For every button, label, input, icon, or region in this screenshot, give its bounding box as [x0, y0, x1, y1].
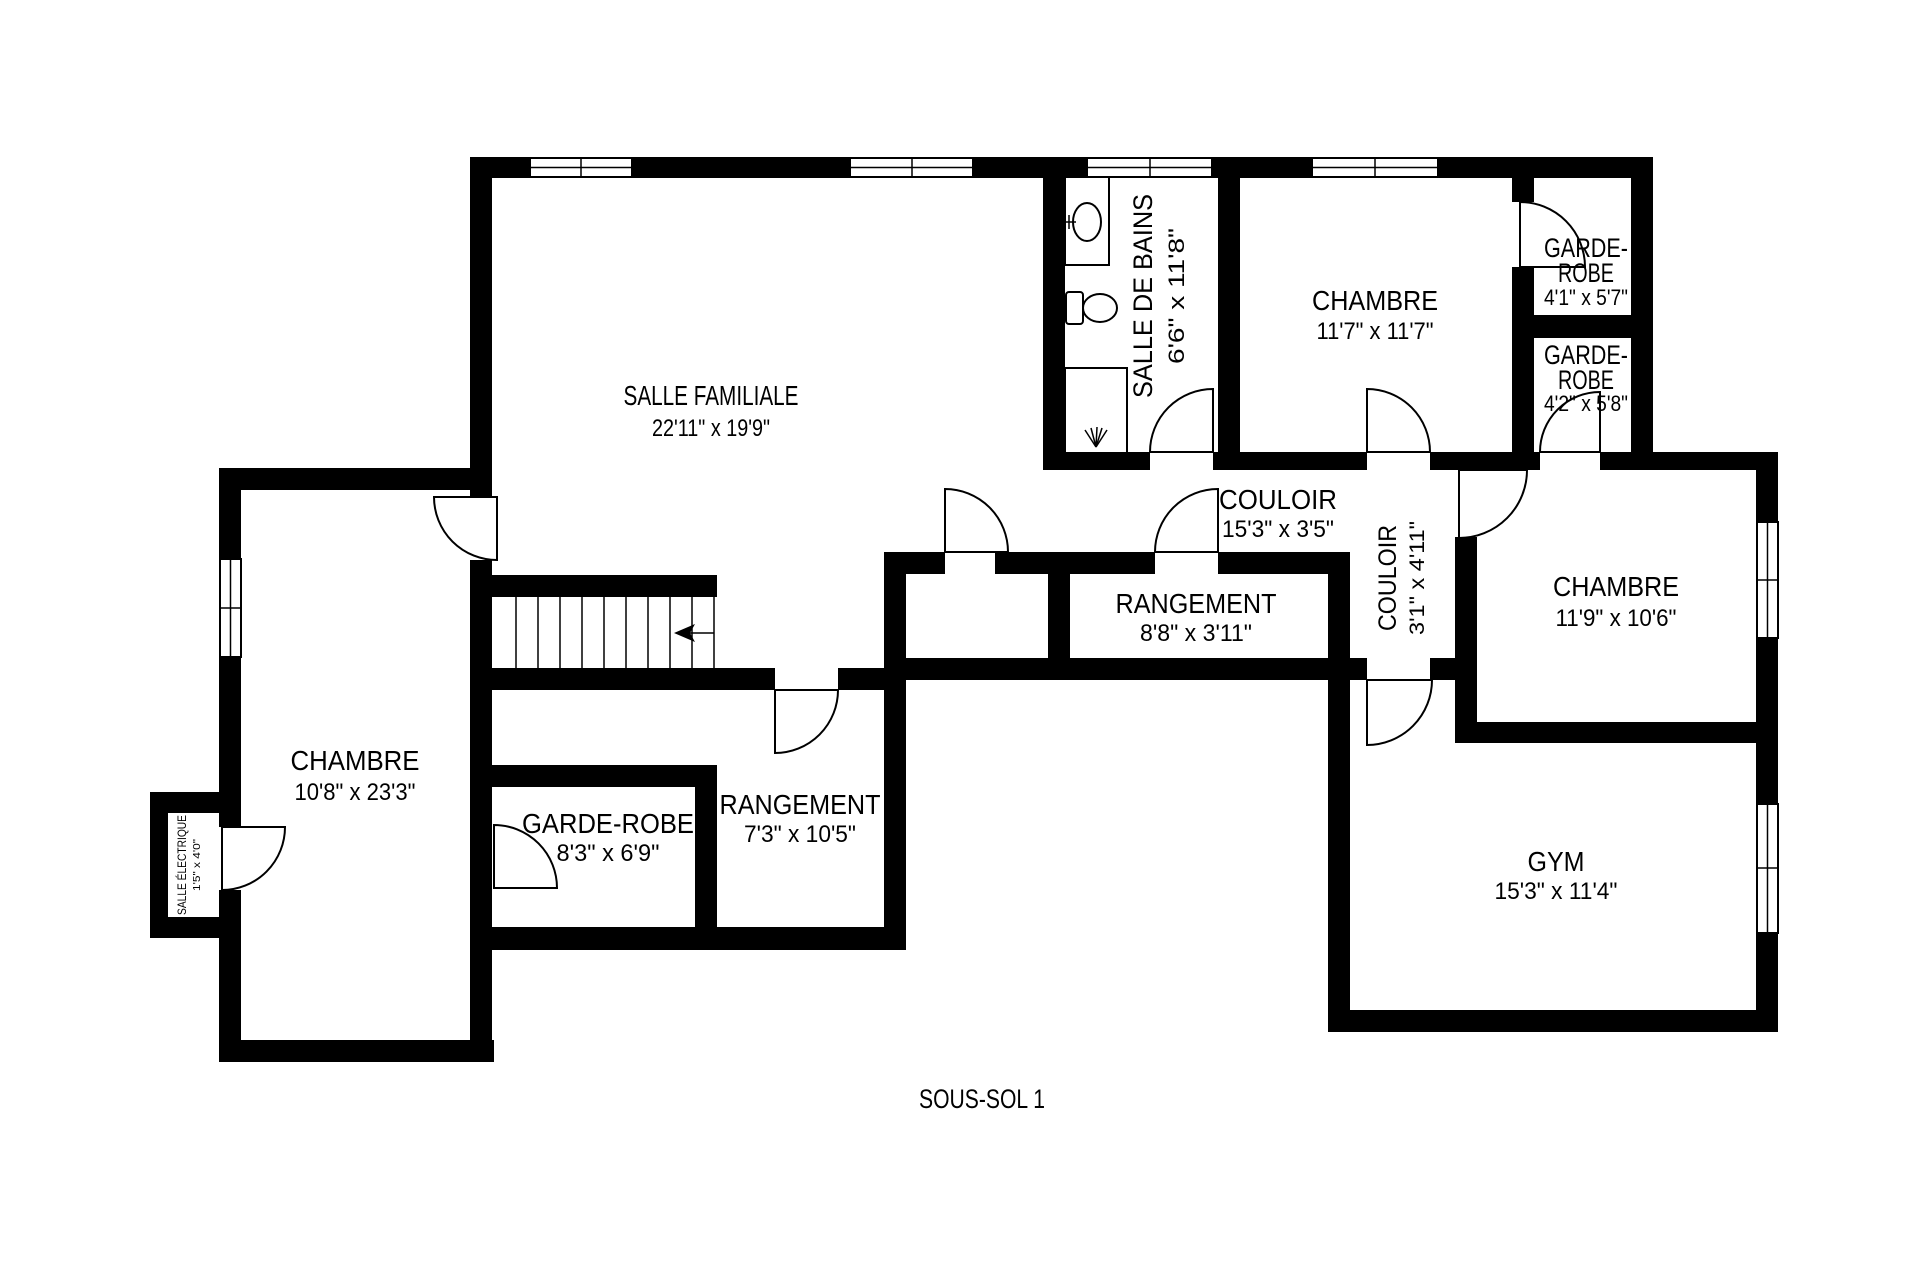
wall-segment	[1218, 157, 1240, 470]
window	[1757, 522, 1778, 638]
room-label-chambre-gauche: CHAMBRE	[291, 745, 420, 776]
wall-segment	[472, 575, 717, 597]
bathroom-fixtures	[1062, 177, 1127, 453]
room-dims-gym: 15'3" x 11'4"	[1495, 878, 1618, 905]
wall-segment	[1328, 552, 1350, 1032]
floor-plan: SALLE FAMILIALE 22'11" x 19'9" SALLE DE …	[0, 0, 1920, 1280]
room-dims-rangement: 8'8" x 3'11"	[1140, 620, 1252, 647]
walls	[150, 157, 1778, 1062]
wall-segment	[1213, 452, 1367, 470]
door-arc	[222, 827, 285, 890]
room-label-rangement: RANGEMENT	[1116, 588, 1277, 619]
wall-segment	[884, 552, 906, 950]
wall-segment	[995, 552, 1155, 574]
window	[1757, 804, 1778, 933]
window	[220, 559, 241, 657]
room-dims-salle-familiale: 22'11" x 19'9"	[652, 415, 770, 442]
window	[1312, 158, 1438, 177]
room-label-chambre-haut: CHAMBRE	[1312, 285, 1438, 316]
room-label-garde-robe-gauche: GARDE-ROBE	[522, 808, 694, 839]
wall-segment	[1043, 157, 1065, 470]
wall-segment	[1512, 338, 1534, 470]
wall-segment	[884, 658, 1367, 680]
wall-segment	[219, 1040, 494, 1062]
room-dims-garde-robe-gauche: 8'3" x 6'9"	[557, 840, 660, 867]
window	[530, 158, 632, 177]
room-label-couloir-2: COULOIR	[1374, 525, 1402, 631]
door-arc	[1367, 389, 1430, 452]
wall-segment	[884, 552, 945, 574]
wall-segment	[1756, 452, 1778, 522]
wall-segment	[1631, 157, 1653, 470]
room-label-salle-de-bains: SALLE DE BAINS	[1128, 194, 1158, 398]
door-arc	[434, 497, 497, 560]
wall-segment	[695, 765, 717, 950]
wall-segment	[1328, 1010, 1778, 1032]
room-label-chambre-droite: CHAMBRE	[1553, 571, 1679, 602]
door-arc	[1459, 470, 1527, 538]
room-dims-couloir-2: 3'1" x 4'11"	[1406, 521, 1429, 635]
door-arc	[1367, 680, 1432, 745]
wall-segment	[1455, 722, 1778, 743]
wall-segment	[1600, 452, 1778, 470]
wall-segment	[1512, 157, 1534, 202]
window	[1087, 158, 1212, 177]
wall-segment	[1043, 452, 1150, 470]
door-arc	[945, 489, 1008, 552]
door-arc	[1150, 389, 1213, 452]
sink-icon	[1062, 177, 1109, 265]
room-label-garde-robe-1b: ROBE	[1558, 258, 1614, 288]
room-label-rangement-bas: RANGEMENT	[720, 789, 881, 820]
room-label-salle-familiale: SALLE FAMILIALE	[624, 380, 799, 411]
staircase	[516, 597, 714, 668]
plan-title: SOUS-SOL 1	[919, 1084, 1045, 1114]
wall-segment	[1430, 452, 1540, 470]
room-dims-salle-de-bains: 6'6" x 11'8"	[1164, 228, 1189, 364]
stairs-direction-arrow	[674, 624, 714, 642]
toilet-icon	[1066, 292, 1117, 324]
room-label-couloir: COULOIR	[1219, 484, 1337, 515]
window	[850, 158, 973, 177]
wall-segment	[219, 468, 490, 490]
wall-segment	[1756, 638, 1778, 804]
room-dims-garde-robe-2: 4'2" x 5'8"	[1544, 391, 1628, 416]
wall-segment	[472, 668, 775, 690]
room-dims-garde-robe-1: 4'1" x 5'7"	[1544, 285, 1628, 310]
room-label-gym: GYM	[1528, 846, 1585, 877]
wall-segment	[470, 157, 492, 497]
room-labels: SALLE FAMILIALE 22'11" x 19'9" SALLE DE …	[174, 194, 1679, 1114]
door-arc	[1155, 489, 1218, 552]
shower-icon	[1065, 368, 1127, 453]
wall-segment	[470, 560, 492, 1062]
room-dims-couloir: 15'3" x 3'5"	[1222, 516, 1334, 543]
room-dims-rangement-bas: 7'3" x 10'5"	[744, 821, 856, 848]
floor-plan-canvas: SALLE FAMILIALE 22'11" x 19'9" SALLE DE …	[0, 0, 1920, 1280]
wall-segment	[1218, 552, 1328, 574]
room-dims-salle-electrique: 1'5" x 4'0"	[192, 838, 203, 891]
room-label-salle-electrique: SALLE ÉLECTRIQUE	[174, 815, 189, 915]
wall-segment	[1455, 537, 1477, 743]
wall-segment	[219, 468, 241, 559]
door-arc	[775, 690, 838, 753]
room-dims-chambre-droite: 11'9" x 10'6"	[1556, 605, 1677, 632]
wall-segment	[472, 765, 717, 787]
room-dims-chambre-haut: 11'7" x 11'7"	[1317, 318, 1434, 345]
wall-segment	[472, 927, 906, 950]
room-dims-chambre-gauche: 10'8" x 23'3"	[295, 779, 416, 806]
